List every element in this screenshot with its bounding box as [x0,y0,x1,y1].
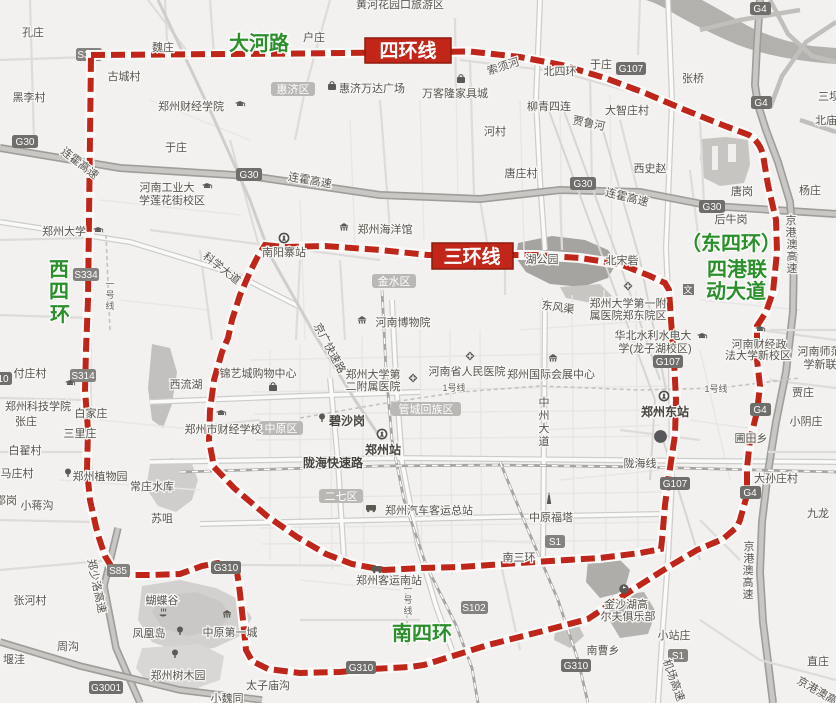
svg-text:河南工业大: 河南工业大 [140,180,195,194]
svg-text:G4: G4 [754,98,768,109]
svg-text:郑州大学: 郑州大学 [42,224,86,238]
svg-text:陇海快速路: 陇海快速路 [303,455,364,470]
svg-text:九龙: 九龙 [807,507,829,520]
svg-text:动大道: 动大道 [706,279,766,303]
svg-text:G107: G107 [663,479,688,490]
svg-text:京: 京 [744,539,755,553]
svg-text:付庄村: 付庄村 [14,366,47,380]
svg-text:白翟村: 白翟村 [9,443,42,457]
svg-text:G3001: G3001 [91,683,121,694]
svg-text:四环线: 四环线 [379,39,436,62]
svg-text:湖公园: 湖公园 [526,253,559,266]
svg-text:锦艺城购物中心: 锦艺城购物中心 [220,366,297,380]
svg-text:郑州站: 郑州站 [365,442,401,457]
svg-text:常庄水库: 常庄水库 [130,479,174,493]
svg-text:G4: G4 [753,405,767,416]
svg-text:速: 速 [787,262,798,275]
svg-text:郑州东站: 郑州东站 [641,404,689,419]
svg-text:邵岗: 邵岗 [0,494,17,507]
svg-text:高: 高 [743,575,754,589]
svg-text:金沙湖高: 金沙湖高 [604,597,648,611]
svg-text:万客隆家具城: 万客隆家具城 [422,86,488,100]
svg-text:堰洼: 堰洼 [3,652,25,666]
svg-text:管城回族区: 管城回族区 [399,402,454,416]
svg-text:户庄: 户庄 [303,30,325,44]
svg-text:唐岗: 唐岗 [731,184,753,198]
svg-text:三里庄: 三里庄 [64,426,97,440]
svg-text:郑州树木园: 郑州树木园 [151,668,206,682]
svg-text:苏咀: 苏咀 [151,512,173,525]
svg-text:G107: G107 [656,357,681,368]
svg-text:郑州汽车客运总站: 郑州汽车客运总站 [385,503,473,517]
svg-text:蝴蝶谷: 蝴蝶谷 [146,593,179,607]
svg-text:G30: G30 [574,179,593,190]
svg-text:张庄: 张庄 [15,414,37,428]
svg-text:郑州大学第: 郑州大学第 [346,367,401,381]
svg-text:郑州科技学院: 郑州科技学院 [5,399,71,413]
svg-text:张河村: 张河村 [14,593,47,607]
svg-text:郑州财经学院: 郑州财经学院 [158,99,224,113]
svg-text:黄河花园口旅游区: 黄河花园口旅游区 [356,0,444,11]
svg-text:G310: G310 [564,661,589,672]
svg-text:直庄: 直庄 [807,654,829,668]
svg-text:学新联: 学新联 [804,357,836,371]
svg-text:周沟: 周沟 [57,640,79,653]
svg-text:大智庄村: 大智庄村 [605,103,649,117]
svg-text:郑州海洋馆: 郑州海洋馆 [358,222,413,236]
svg-text:南三环: 南三环 [503,551,536,564]
svg-text:北庙: 北庙 [815,113,836,127]
svg-text:于庄: 于庄 [165,140,187,154]
svg-text:S102: S102 [462,603,486,614]
svg-text:惠济区: 惠济区 [277,82,310,96]
svg-text:小阴庄: 小阴庄 [790,414,823,428]
svg-text:环: 环 [50,304,70,326]
svg-text:碧沙岗: 碧沙岗 [328,413,365,428]
svg-text:二附属医院: 二附属医院 [346,379,401,393]
svg-text:线: 线 [105,300,114,311]
svg-text:（东四环）: （东四环） [681,231,781,255]
svg-text:G4: G4 [743,488,757,499]
svg-text:郑州大学第一附: 郑州大学第一附 [590,296,667,310]
svg-text:北宋砦: 北宋砦 [606,253,639,267]
svg-text:港: 港 [786,226,797,239]
svg-text:学(龙子湖校区): 学(龙子湖校区) [618,341,691,355]
svg-text:河南省人民医院: 河南省人民医院 [429,364,506,378]
svg-text:二七区: 二七区 [325,490,358,503]
svg-text:澳: 澳 [787,238,798,251]
svg-text:大: 大 [539,421,550,435]
svg-text:G310: G310 [214,563,239,574]
svg-text:古城村: 古城村 [108,69,141,83]
svg-text:一: 一 [105,279,114,289]
svg-text:南曹乡: 南曹乡 [587,644,620,657]
svg-text:港: 港 [744,552,755,565]
svg-text:1号线: 1号线 [442,382,465,393]
svg-text:华北水利水电大: 华北水利水电大 [615,328,692,342]
svg-text:西史赵: 西史赵 [634,161,667,175]
svg-text:金水区: 金水区 [378,274,411,288]
svg-text:马庄村: 马庄村 [1,466,34,480]
svg-text:郑州市财经学校: 郑州市财经学校 [185,422,262,436]
svg-text:速: 速 [743,588,754,601]
svg-text:河村: 河村 [484,124,506,138]
svg-text:三环线: 三环线 [443,245,500,268]
svg-text:京: 京 [786,213,797,227]
svg-text:文: 文 [683,284,692,295]
svg-text:小蒋沟: 小蒋沟 [21,499,54,512]
svg-text:张桥: 张桥 [682,72,704,85]
svg-text:学莲花街校区: 学莲花街校区 [139,193,205,207]
svg-text:杨庄: 杨庄 [799,183,821,197]
svg-text:太子庙沟: 太子庙沟 [246,678,290,692]
svg-text:西流湖: 西流湖 [170,377,203,391]
svg-text:1号线: 1号线 [704,383,727,394]
svg-text:小站庄: 小站庄 [658,628,691,642]
svg-text:S85: S85 [109,566,127,577]
svg-text:河南师范大: 河南师范大 [798,344,836,358]
svg-text:孔庄: 孔庄 [22,25,44,39]
svg-text:G310: G310 [349,663,374,674]
svg-text:于庄: 于庄 [590,57,612,71]
svg-text:G30: G30 [16,137,35,148]
svg-text:中原区: 中原区 [265,422,298,435]
svg-text:圃田乡: 圃田乡 [735,432,768,445]
svg-text:10: 10 [0,374,9,385]
svg-text:凤凰岛: 凤凰岛 [133,626,166,640]
svg-text:贾庄: 贾庄 [792,385,814,399]
svg-text:河南博物院: 河南博物院 [376,315,431,329]
svg-text:郑州植物园: 郑州植物园 [73,469,128,483]
svg-text:黑李村: 黑李村 [13,90,46,104]
svg-text:G107: G107 [619,64,644,75]
svg-text:S1: S1 [672,651,685,662]
svg-text:四: 四 [49,281,69,303]
svg-text:南阳寨站: 南阳寨站 [262,245,306,259]
svg-text:柳青四连: 柳青四连 [527,99,571,113]
svg-text:中原福塔: 中原福塔 [529,510,573,524]
svg-text:G4: G4 [753,4,767,15]
svg-text:道: 道 [539,434,550,448]
svg-text:大孙庄村: 大孙庄村 [754,471,798,485]
svg-text:州: 州 [539,410,550,422]
svg-text:G30: G30 [703,202,722,213]
svg-text:号: 号 [105,290,114,300]
svg-text:北四环: 北四环 [544,65,577,78]
svg-text:南四环: 南四环 [392,622,452,645]
svg-text:大河路: 大河路 [229,31,290,55]
svg-text:中原第一城: 中原第一城 [203,625,258,639]
svg-text:高: 高 [787,249,798,263]
svg-text:S314: S314 [71,371,95,382]
svg-text:尔夫俱乐部: 尔夫俱乐部 [601,609,656,623]
svg-text:郑州客运南站: 郑州客运南站 [356,573,422,587]
svg-text:线: 线 [403,605,412,616]
svg-text:G30: G30 [240,170,259,181]
svg-text:魏庄: 魏庄 [152,40,174,54]
svg-text:后牛岗: 后牛岗 [715,212,748,226]
svg-text:白家庄: 白家庄 [75,406,108,420]
svg-text:郑州国际会展中心: 郑州国际会展中心 [507,367,595,381]
svg-text:西: 西 [49,259,69,281]
svg-text:S1: S1 [549,537,562,548]
svg-text:澳: 澳 [743,564,754,577]
svg-text:小魏同: 小魏同 [211,691,244,703]
svg-text:三坝: 三坝 [818,89,836,103]
svg-text:河南财经政: 河南财经政 [732,337,787,351]
svg-text:S334: S334 [74,270,98,281]
svg-text:惠济万达广场: 惠济万达广场 [339,81,405,95]
svg-text:中: 中 [539,396,550,409]
svg-text:陇海线: 陇海线 [624,456,657,470]
svg-text:唐庄村: 唐庄村 [505,166,538,180]
svg-text:法大学新校区: 法大学新校区 [725,348,791,362]
svg-text:号: 号 [403,595,412,605]
svg-text:属医院郑东院区: 属医院郑东院区 [590,308,667,322]
svg-text:四港联: 四港联 [707,257,767,281]
